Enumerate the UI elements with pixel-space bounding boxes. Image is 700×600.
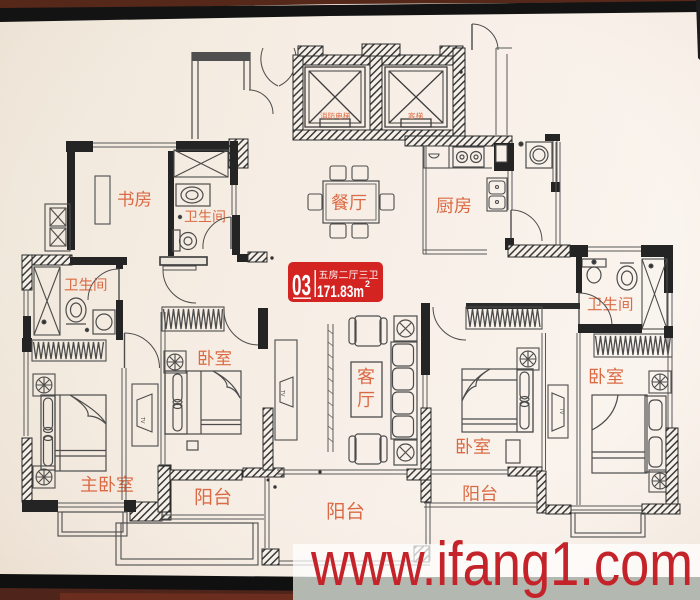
svg-text:171.83m: 171.83m xyxy=(317,282,364,301)
svg-text:TV: TV xyxy=(139,417,145,424)
svg-text:2: 2 xyxy=(365,279,370,289)
svg-text:TV: TV xyxy=(279,390,285,397)
svg-text:www.ifang1.com: www.ifang1.com xyxy=(310,530,693,599)
svg-text:03: 03 xyxy=(292,270,311,302)
svg-text:TV: TV xyxy=(558,408,564,415)
